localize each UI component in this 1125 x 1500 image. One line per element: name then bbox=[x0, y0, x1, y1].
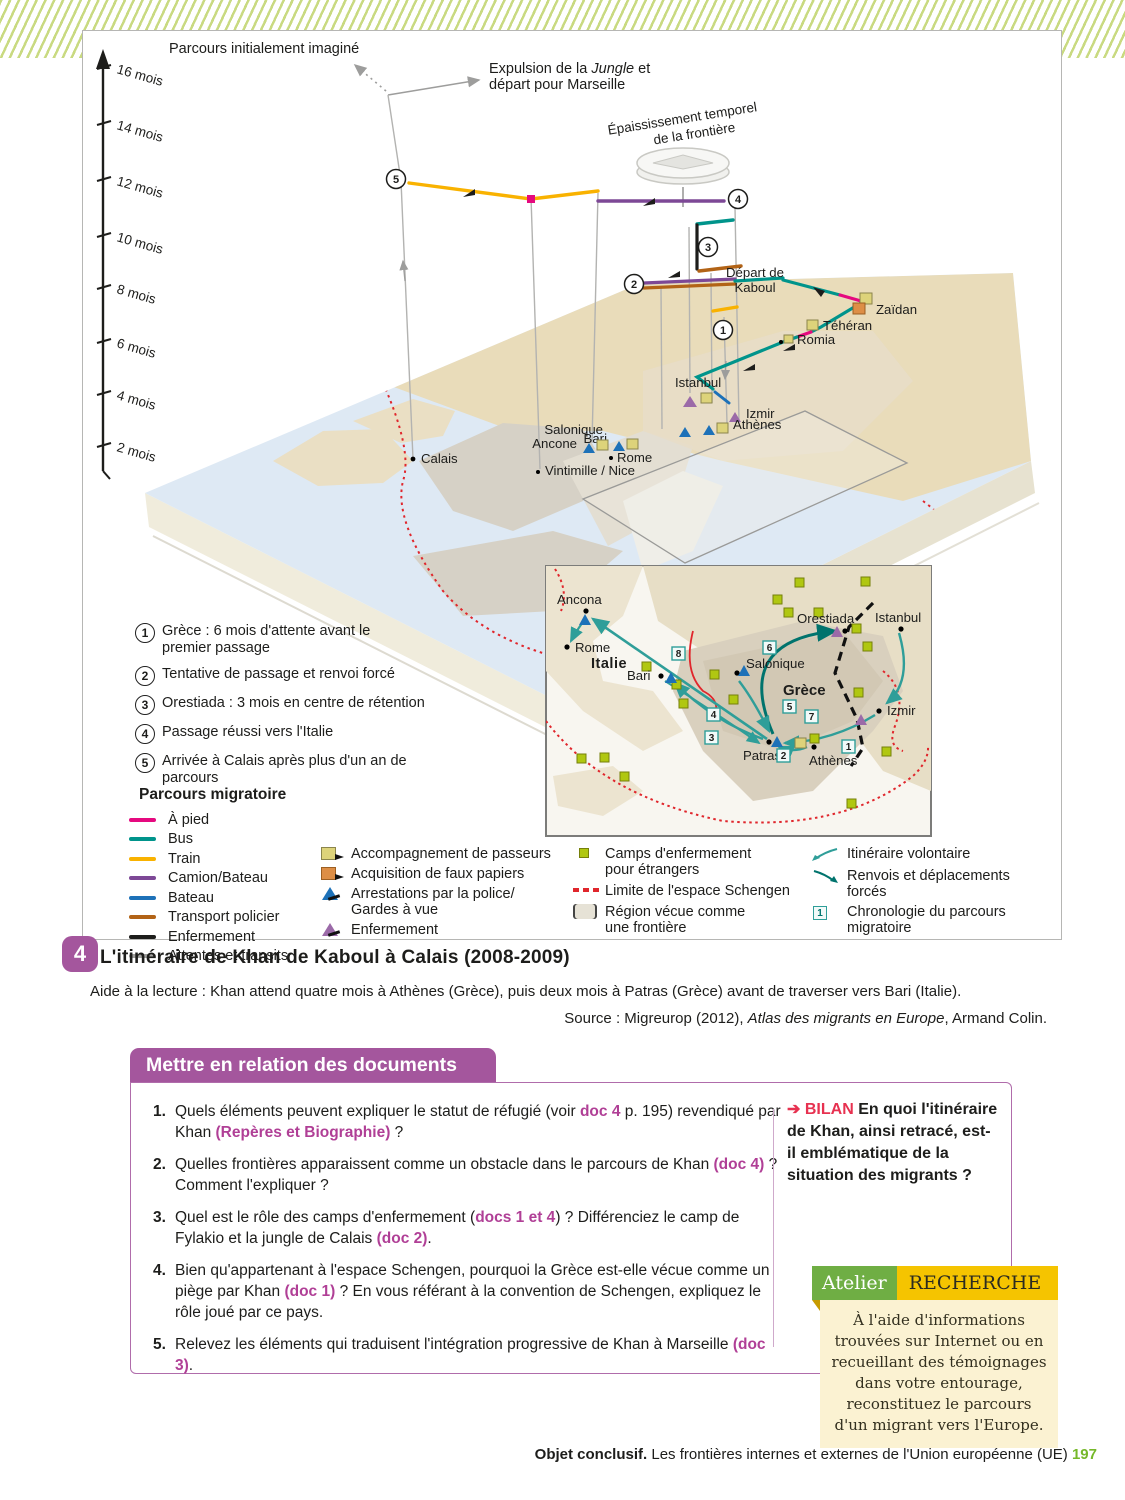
svg-text:5: 5 bbox=[393, 174, 399, 186]
annotation-expulsion: Expulsion de la Jungle et départ pour Ma… bbox=[388, 61, 650, 95]
note-4: 4Passage réussi vers l'Italie bbox=[135, 724, 487, 744]
inset-label-patras: Patras bbox=[743, 748, 782, 763]
note-number: 4 bbox=[135, 724, 155, 744]
svg-text:1: 1 bbox=[846, 742, 852, 753]
inset-label-ancona: Ancona bbox=[557, 592, 602, 607]
question-2: 2.Quelles frontières apparaissent comme … bbox=[153, 1154, 781, 1196]
truck-boat-line-swatch bbox=[129, 876, 156, 880]
police-transport-line-swatch bbox=[129, 915, 156, 919]
doc-ref: (doc 4) bbox=[714, 1156, 765, 1173]
inset-label-rome: Rome bbox=[575, 640, 610, 655]
label-rome: Rome bbox=[617, 450, 652, 465]
legend-areas: Camps d'enfermement pour étrangers Limit… bbox=[571, 846, 790, 941]
arrest-triangle-icon bbox=[322, 887, 338, 900]
axis-tick-14: 14 mois bbox=[115, 117, 165, 145]
label-romia: Romia bbox=[797, 332, 836, 347]
axis-tick-10: 10 mois bbox=[115, 229, 165, 257]
legend-title: Parcours migratoire bbox=[139, 786, 286, 804]
page-number: 197 bbox=[1072, 1446, 1097, 1463]
schengen-limit-icon bbox=[573, 888, 599, 892]
chronology-box-icon: 1 bbox=[813, 906, 827, 920]
document-title: L'itinéraire de Khan de Kaboul à Calais … bbox=[100, 947, 570, 969]
question-5: 5.Relevez les éléments qui traduisent l'… bbox=[153, 1334, 781, 1376]
doc-ref: (Repères et Biographie) bbox=[216, 1124, 391, 1141]
axis-tick-16: 16 mois bbox=[115, 61, 165, 89]
question-3: 3.Quel est le rôle des camps d'enfermeme… bbox=[153, 1207, 781, 1249]
border-thickening-disc bbox=[637, 148, 729, 207]
time-axis: 16 mois 14 mois 12 mois 10 mois 8 mois 6… bbox=[96, 49, 165, 479]
label-zaidan: Zaïdan bbox=[876, 302, 917, 317]
svg-text:3: 3 bbox=[705, 242, 711, 254]
label-kaboul: Départ de bbox=[726, 265, 784, 280]
svg-text:3: 3 bbox=[709, 733, 715, 744]
atelier-box: Atelier RECHERCHE À l'aide d'information… bbox=[812, 1266, 1058, 1448]
inset-label-italie: Italie bbox=[591, 656, 627, 672]
legend-route-types: À pied Bus Train Camion/Bateau Bateau Tr… bbox=[129, 810, 288, 966]
reading-help: Aide à la lecture : Khan attend quatre m… bbox=[90, 983, 1050, 1000]
doc-ref: doc 4 bbox=[580, 1103, 620, 1120]
axis-tick-2: 2 mois bbox=[115, 439, 158, 464]
atelier-header: RECHERCHE bbox=[897, 1266, 1058, 1300]
step-3: 3 bbox=[699, 238, 718, 257]
svg-text:2: 2 bbox=[781, 751, 787, 762]
svg-text:1: 1 bbox=[720, 325, 726, 337]
svg-text:Parcours initialement imaginé: Parcours initialement imaginé bbox=[169, 41, 359, 57]
forced-return-arrow-icon bbox=[809, 868, 841, 886]
axis-tick-12: 12 mois bbox=[115, 173, 165, 201]
fake-papers-square-icon bbox=[321, 867, 336, 880]
legend-arrows: Itinéraire volontaire Renvois et déplace… bbox=[809, 846, 1022, 940]
axis-tick-4: 4 mois bbox=[115, 387, 158, 412]
label-athenes: Athènes bbox=[733, 417, 782, 432]
svg-text:4: 4 bbox=[711, 710, 717, 721]
questions-header: Mettre en relation des documents bbox=[130, 1048, 496, 1082]
svg-text:8: 8 bbox=[676, 649, 682, 660]
svg-text:Kaboul: Kaboul bbox=[734, 280, 775, 295]
smuggler-square-icon bbox=[321, 847, 336, 860]
bilan-block: ➔ BILAN En quoi l'itinéraire de Khan, ai… bbox=[787, 1099, 999, 1187]
note-2: 2Tentative de passage et renvoi forcé bbox=[135, 666, 487, 686]
bilan-arrow-icon: ➔ bbox=[787, 1101, 805, 1118]
atelier-tab: Atelier bbox=[812, 1266, 897, 1300]
frontier-region-icon bbox=[573, 904, 597, 919]
label-calais: Calais bbox=[421, 451, 458, 466]
atelier-body: À l'aide d'informations trouvées sur Int… bbox=[820, 1300, 1058, 1448]
boat-line-swatch bbox=[129, 896, 156, 900]
figure-notes: 1Grèce : 6 mois d'attente avant le premi… bbox=[135, 623, 487, 796]
atelier-fold bbox=[812, 1300, 820, 1311]
confinement-line-swatch bbox=[129, 935, 156, 939]
note-5: 5Arrivée à Calais après plus d'un an de … bbox=[135, 753, 487, 787]
camp-square-icon bbox=[579, 848, 589, 858]
inset-label-salonique: Salonique bbox=[746, 656, 805, 671]
questions-divider bbox=[773, 1109, 774, 1347]
inset-label-istanbul: Istanbul bbox=[875, 610, 921, 625]
source-line: Source : Migreurop (2012), Atlas des mig… bbox=[564, 1010, 1047, 1027]
axis-tick-6: 6 mois bbox=[115, 335, 158, 360]
doc-ref: (doc 2) bbox=[377, 1230, 428, 1247]
question-4: 4.Bien qu'appartenant à l'espace Schenge… bbox=[153, 1260, 781, 1323]
note-number: 1 bbox=[135, 623, 155, 643]
svg-text:départ pour Marseille: départ pour Marseille bbox=[489, 77, 625, 93]
inset-label-grece: Grèce bbox=[783, 682, 826, 699]
doc-ref: docs 1 et 4 bbox=[475, 1209, 555, 1226]
questions-list: 1.Quels éléments peuvent expliquer le st… bbox=[153, 1101, 781, 1387]
inset-label-izmir: Izmir bbox=[887, 703, 916, 718]
inset-map: Ancona Rome Italie Bari Orestiada Istanb… bbox=[546, 566, 931, 836]
document4-figure: 16 mois 14 mois 12 mois 10 mois 8 mois 6… bbox=[82, 30, 1062, 940]
label-istanbul: Istanbul bbox=[675, 375, 721, 390]
step-2: 2 bbox=[625, 275, 644, 294]
confinement-triangle-icon bbox=[322, 923, 338, 936]
step-5: 5 bbox=[387, 170, 406, 189]
svg-text:6: 6 bbox=[767, 643, 773, 654]
svg-text:2: 2 bbox=[631, 279, 637, 291]
axis-tick-8: 8 mois bbox=[115, 281, 158, 306]
walk-line-swatch bbox=[129, 818, 156, 822]
note-number: 3 bbox=[135, 695, 155, 715]
svg-text:5: 5 bbox=[787, 702, 793, 713]
note-1: 1Grèce : 6 mois d'attente avant le premi… bbox=[135, 623, 487, 657]
label-teheran: Téhéran bbox=[823, 318, 872, 333]
annotation-initial-route: Parcours initialement imaginé bbox=[169, 41, 386, 91]
inset-label-bari: Bari bbox=[627, 668, 651, 683]
note-number: 2 bbox=[135, 666, 155, 686]
inset-label-orestiada: Orestiada bbox=[797, 611, 855, 626]
question-1: 1.Quels éléments peuvent expliquer le st… bbox=[153, 1101, 781, 1143]
note-3: 3Orestiada : 3 mois en centre de rétenti… bbox=[135, 695, 487, 715]
inset-label-athenes: Athènes bbox=[809, 753, 858, 768]
label-ancone: Ancone bbox=[532, 436, 577, 451]
step-4: 4 bbox=[729, 190, 748, 209]
svg-text:Expulsion de la Jungle et: Expulsion de la Jungle et bbox=[489, 61, 650, 77]
step-1: 1 bbox=[714, 321, 733, 340]
svg-text:4: 4 bbox=[735, 194, 742, 206]
bus-line-swatch bbox=[129, 837, 156, 841]
note-number: 5 bbox=[135, 753, 155, 773]
document-number-badge: 4 bbox=[62, 936, 98, 972]
doc-ref: (doc 1) bbox=[284, 1283, 335, 1300]
train-line-swatch bbox=[129, 857, 156, 861]
svg-text:7: 7 bbox=[809, 712, 815, 723]
legend-event-markers: Accompagnement de passeurs Acquisition d… bbox=[321, 846, 551, 942]
label-vintimille: Vintimille / Nice bbox=[545, 463, 635, 478]
page-footer: Objet conclusif. Les frontières internes… bbox=[535, 1446, 1097, 1463]
voluntary-route-arrow-icon bbox=[809, 846, 841, 864]
